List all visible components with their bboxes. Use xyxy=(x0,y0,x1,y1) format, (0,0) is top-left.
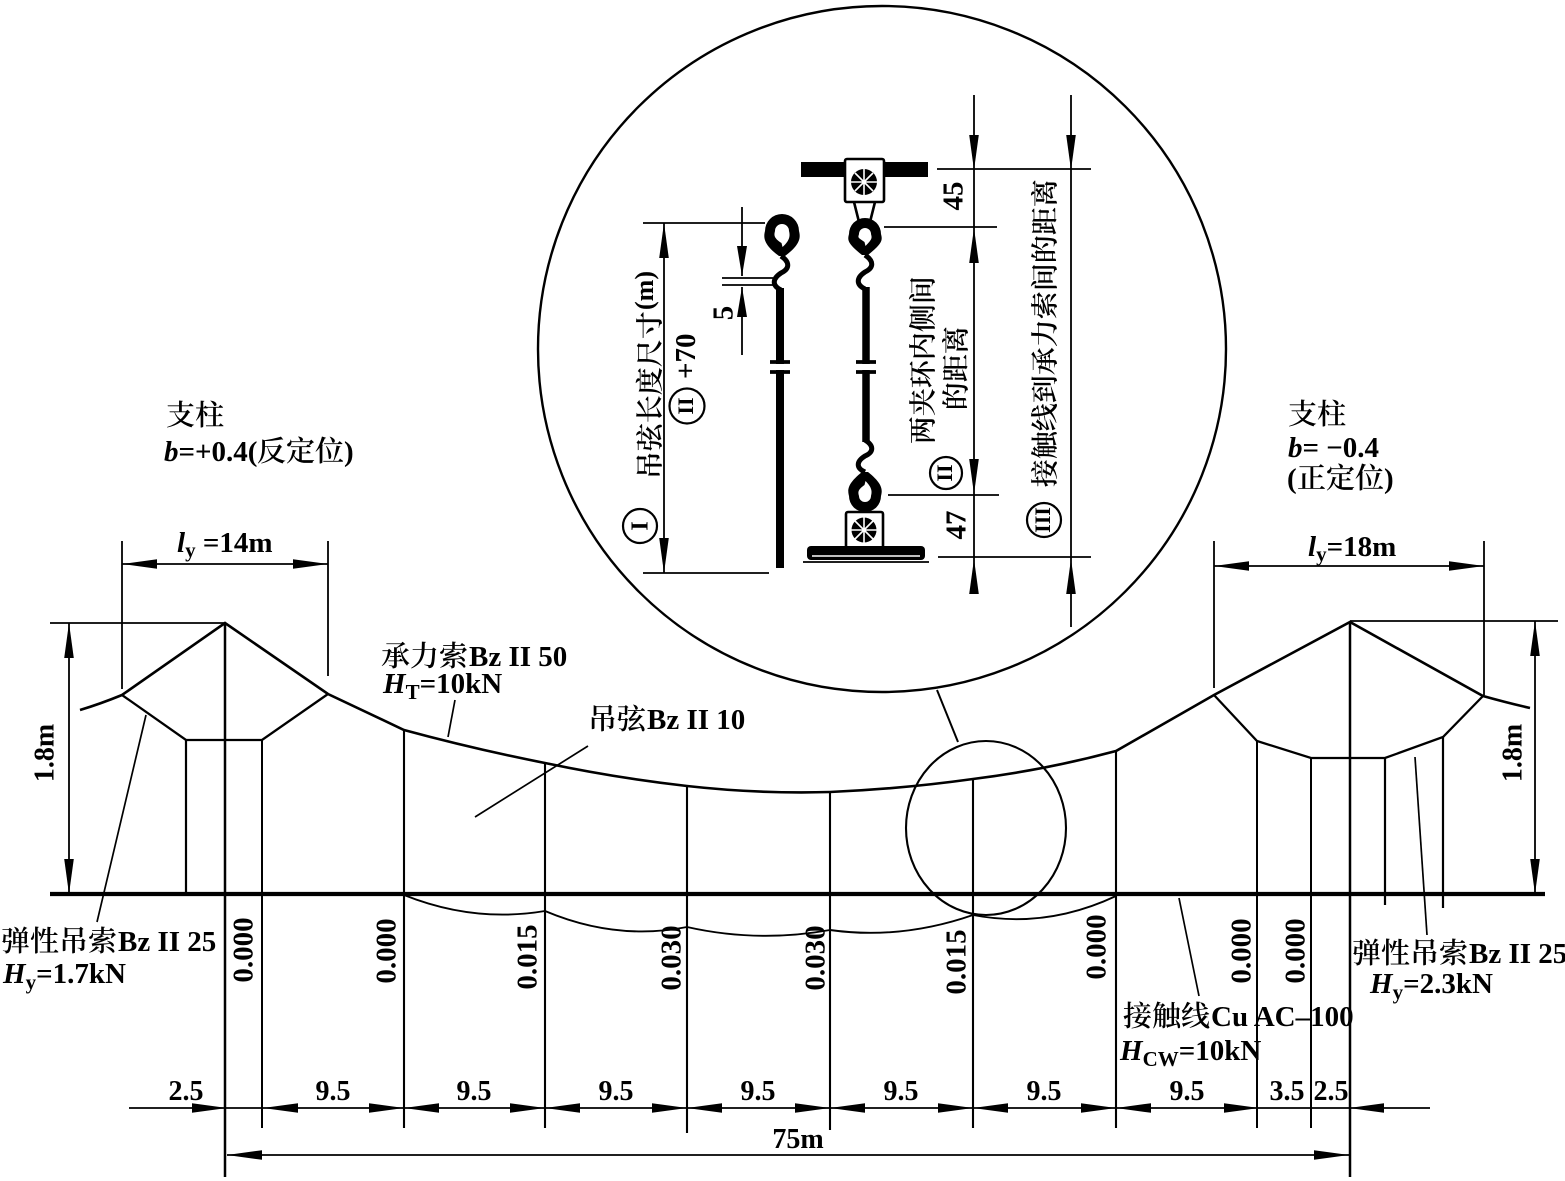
svg-text:9.5: 9.5 xyxy=(1027,1076,1062,1107)
svg-text:0.000: 0.000 xyxy=(228,917,260,982)
svg-text:(: ( xyxy=(1287,463,1297,495)
svg-text:b=+0.4(: b=+0.4( xyxy=(164,436,257,468)
svg-text:75m: 75m xyxy=(772,1124,823,1155)
svg-text:0.000: 0.000 xyxy=(1280,918,1312,983)
svg-text:Bz II 10: Bz II 10 xyxy=(647,704,745,736)
svg-text:9.5: 9.5 xyxy=(884,1076,919,1107)
svg-text:Hy=1.7kN: Hy=1.7kN xyxy=(2,958,126,994)
svg-text:9.5: 9.5 xyxy=(457,1076,492,1107)
svg-text:3.5: 3.5 xyxy=(1270,1076,1305,1107)
svg-text:47: 47 xyxy=(941,511,973,540)
svg-text:5: 5 xyxy=(708,306,740,321)
svg-text:45: 45 xyxy=(938,182,970,211)
svg-text:Cu AC–100: Cu AC–100 xyxy=(1211,1001,1354,1033)
svg-text:1.8m: 1.8m xyxy=(29,724,60,782)
svg-text:Bz II 25: Bz II 25 xyxy=(1469,938,1565,970)
svg-text:(m): (m) xyxy=(630,271,659,310)
svg-text:9.5: 9.5 xyxy=(316,1076,351,1107)
svg-text:9.5: 9.5 xyxy=(1170,1076,1205,1107)
svg-text:0.030: 0.030 xyxy=(800,925,832,990)
svg-text:III: III xyxy=(1030,507,1055,533)
svg-text:Bz II 25: Bz II 25 xyxy=(118,926,216,958)
svg-text:0.000: 0.000 xyxy=(1226,918,1258,983)
svg-text:0.015: 0.015 xyxy=(512,924,544,989)
svg-text:HCW=10kN: HCW=10kN xyxy=(1119,1035,1261,1071)
svg-text:0.030: 0.030 xyxy=(656,925,688,990)
svg-text:9.5: 9.5 xyxy=(741,1076,776,1107)
svg-text:): ) xyxy=(344,436,354,468)
svg-text:0.000: 0.000 xyxy=(1081,914,1113,979)
svg-text:1.8m: 1.8m xyxy=(1497,724,1528,782)
svg-text:II: II xyxy=(932,464,957,481)
svg-text:b= −0.4: b= −0.4 xyxy=(1288,432,1379,464)
svg-text:0.000: 0.000 xyxy=(371,918,403,983)
svg-text:2.5: 2.5 xyxy=(169,1076,204,1107)
svg-text:II: II xyxy=(673,397,698,414)
svg-text:I: I xyxy=(628,521,654,530)
svg-text:2.5: 2.5 xyxy=(1314,1076,1349,1107)
svg-text:Hy=2.3kN: Hy=2.3kN xyxy=(1369,968,1493,1004)
svg-text:+70: +70 xyxy=(670,333,702,379)
svg-text:HT=10kN: HT=10kN xyxy=(382,668,502,704)
svg-text:): ) xyxy=(1384,463,1394,495)
svg-text:0.015: 0.015 xyxy=(941,929,973,994)
svg-text:9.5: 9.5 xyxy=(599,1076,634,1107)
